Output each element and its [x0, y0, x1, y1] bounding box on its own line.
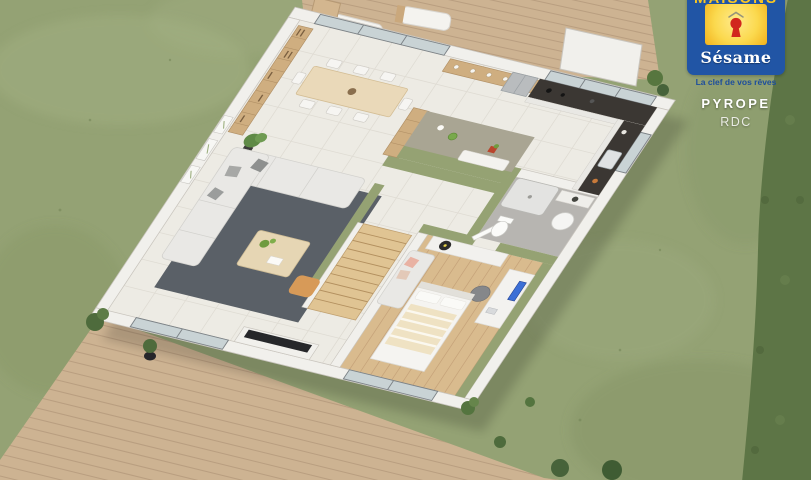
potted-plant [143, 339, 157, 353]
brand-logo-box: MAISONS Sésame [687, 0, 785, 75]
keyhole-icon [721, 10, 751, 40]
bush [602, 460, 622, 480]
floor-label: RDC [687, 115, 785, 129]
model-name: PYROPE [687, 96, 785, 111]
roof-icon [729, 13, 743, 18]
brand-tagline: La clef de vos rêves [687, 77, 785, 87]
bush [97, 308, 109, 320]
keyhole-emblem [705, 4, 767, 45]
bush [494, 436, 506, 448]
bush [657, 84, 669, 96]
bush [469, 397, 479, 407]
brand-name-top: MAISONS [687, 0, 785, 3]
brand-name: Sésame [687, 45, 785, 71]
bush [525, 397, 535, 407]
floor-plan-render: MAISONS Sésame La clef de vos rêves PYRO… [0, 0, 811, 480]
bush [647, 70, 663, 86]
bush [551, 459, 569, 477]
brand-logo: MAISONS Sésame La clef de vos rêves PYRO… [687, 0, 785, 129]
